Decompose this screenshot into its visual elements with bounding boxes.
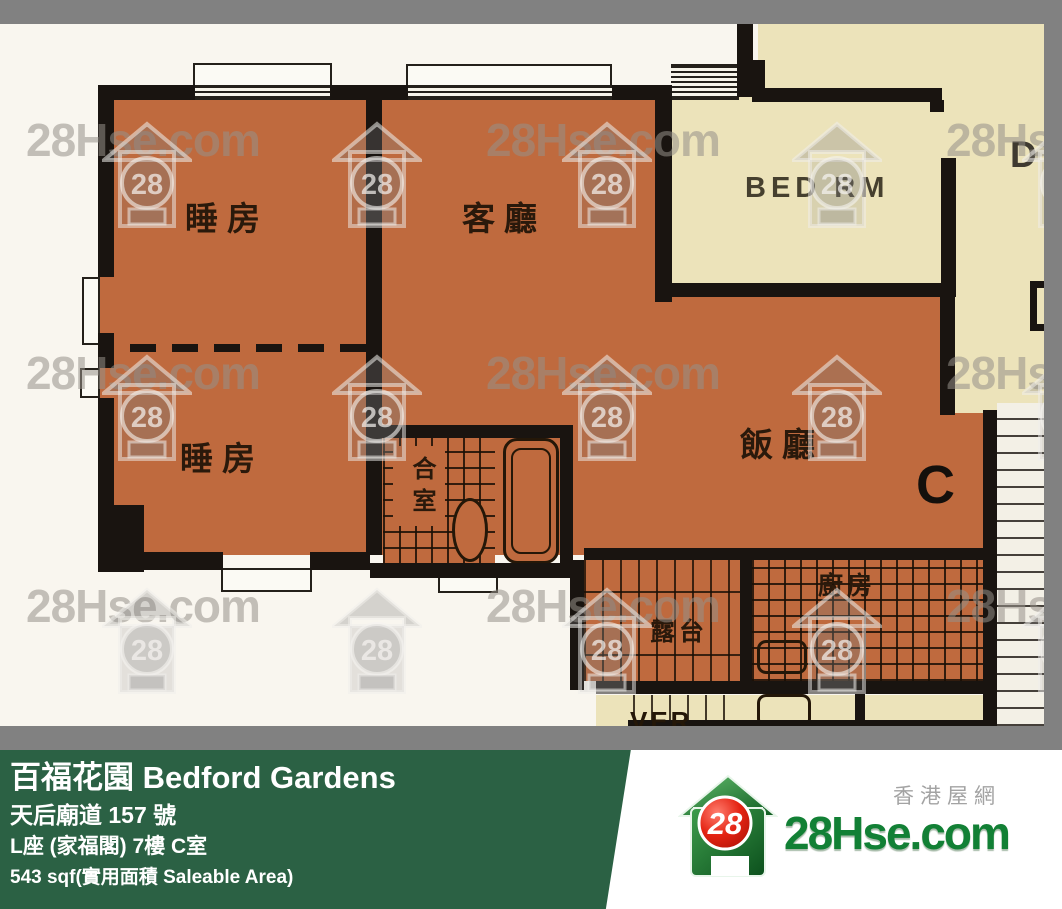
window	[671, 64, 739, 100]
room-label-living: 客廳	[462, 192, 546, 240]
wall	[740, 553, 752, 683]
room-label-kitchen: 廚房	[818, 566, 876, 602]
room-label-balcony: 露台	[650, 612, 708, 648]
wall	[940, 295, 955, 415]
room-label-bedroom-bottom: 睡房	[180, 432, 264, 480]
frame-top-bar	[0, 0, 1062, 24]
balcony-line	[584, 591, 740, 593]
logo-badge-number: 28	[707, 806, 743, 841]
removed-partition-dashed	[130, 344, 368, 352]
wall	[560, 425, 573, 565]
toilet-fixture	[452, 498, 488, 562]
balcony-line	[584, 654, 740, 656]
wall	[370, 563, 497, 578]
room-label-bed-rm: BED RM	[745, 172, 889, 205]
wall	[98, 333, 114, 345]
wall	[752, 88, 942, 102]
window	[193, 63, 332, 87]
wall	[596, 681, 985, 694]
unit-letter-c: C	[916, 454, 955, 516]
floor-plan-page: 睡房 客廳 BED RM D 睡房 飯廳 C 合室 露台 廚房 VER 28Hs…	[0, 0, 1062, 909]
28hse-tagline: 香港屋網	[893, 780, 1001, 810]
window	[221, 568, 312, 592]
28hse-house-logo-icon: 28	[678, 774, 778, 878]
staircase	[997, 403, 1044, 726]
window	[80, 368, 100, 398]
unit-letter-d: D	[1010, 134, 1037, 176]
wall	[655, 90, 672, 302]
room-label-dining: 飯廳	[740, 418, 824, 466]
room-label-bathroom: 合室	[404, 456, 439, 520]
wall	[672, 283, 943, 297]
wall	[98, 398, 114, 505]
wall	[930, 100, 944, 112]
wall	[98, 552, 223, 570]
kitchen-sink	[757, 640, 807, 674]
window-wall	[408, 85, 612, 100]
property-title: 百福花園 Bedford Gardens	[10, 752, 396, 797]
wall	[310, 552, 370, 570]
wall	[98, 85, 114, 277]
wall	[737, 24, 753, 97]
wall	[983, 410, 997, 726]
wall	[570, 560, 584, 690]
property-info-banner: 百福花園 Bedford Gardens 天后廟道 157 號 L座 (家福閣)…	[0, 750, 1062, 909]
frame-bottom-bar	[0, 726, 1062, 750]
bathtub-inner	[511, 448, 551, 554]
room-label-bedroom-top: 睡房	[185, 192, 269, 240]
property-address: 天后廟道 157 號	[10, 796, 176, 830]
wall	[366, 93, 382, 555]
28hse-site-wordmark: 28Hse.com	[784, 806, 1009, 860]
floor-plan-image: 睡房 客廳 BED RM D 睡房 飯廳 C 合室 露台 廚房 VER	[0, 24, 1044, 726]
wall	[941, 158, 956, 297]
wall	[1030, 324, 1044, 331]
wall	[98, 345, 114, 368]
window	[406, 64, 612, 87]
frame-right-bar	[1044, 0, 1062, 750]
property-unit: L座 (家福閣) 7樓 C室	[10, 830, 207, 860]
property-area: 543 sqf(實用面積 Saleable Area)	[10, 862, 293, 889]
wall	[584, 548, 983, 560]
room-label-verandah: VER	[630, 706, 692, 726]
window-wall	[195, 85, 330, 100]
wall	[366, 425, 573, 438]
